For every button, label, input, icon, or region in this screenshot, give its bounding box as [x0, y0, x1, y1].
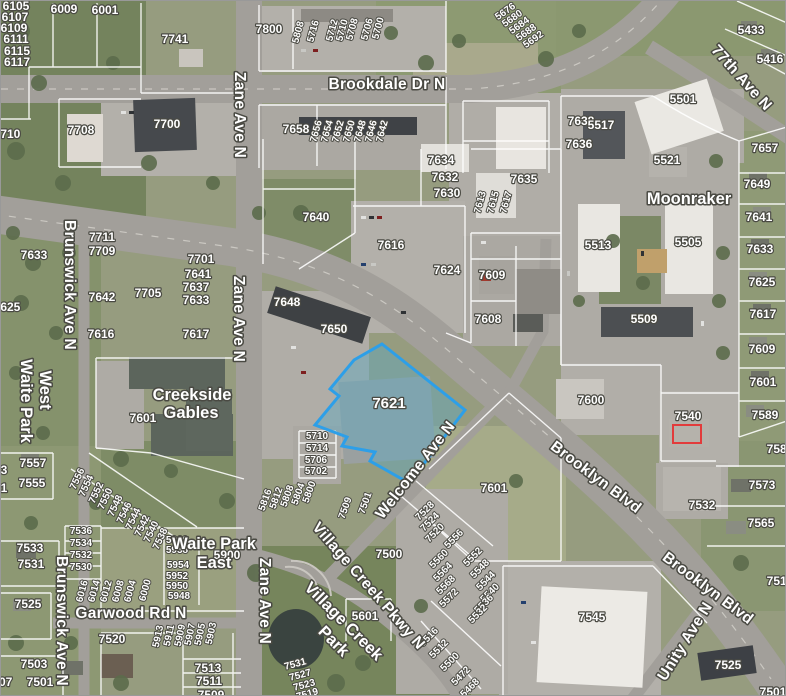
parcel-label: 7600 — [578, 393, 605, 407]
parcel-label: 7617 — [183, 327, 210, 341]
parcel-label: 7630 — [434, 186, 461, 200]
parcel-label: 7517 — [767, 574, 786, 588]
parcel-label: 7507 — [1, 675, 13, 689]
parcel-label: 7616 — [88, 327, 115, 341]
parcel-label: 7650 — [321, 322, 348, 336]
parcel-label: 7636 — [566, 137, 593, 151]
parcel-label: 5505 — [675, 235, 702, 249]
parcel-label: 7573 — [749, 478, 776, 492]
street-label: Garwood Rd N — [75, 605, 186, 622]
parcel-label: 7501 — [27, 675, 54, 689]
parcel-label: 6117 — [4, 55, 30, 69]
parcel-label: 5954 — [167, 560, 190, 571]
street-label: Brunswick Ave N — [61, 220, 78, 350]
map-canvas[interactable]: 6105610761096111611561176009600177417800… — [0, 0, 786, 696]
parcel-label: 7501 — [760, 685, 786, 696]
parcel-label: 7705 — [135, 286, 162, 300]
parcel-label: 7657 — [752, 141, 779, 155]
parcel-label: 7608 — [475, 312, 502, 326]
parcel-label: 7658 — [283, 122, 310, 136]
parcel-label: 5501 — [670, 92, 697, 106]
parcel-label: 7609 — [479, 268, 506, 282]
area-label: Waite Park — [17, 359, 35, 444]
parcel-label: 5706 — [305, 455, 328, 466]
parcel-label: 7609 — [749, 342, 776, 356]
parcel-label: 5433 — [738, 23, 765, 37]
street-label: Zane Ave N — [230, 276, 247, 362]
parcel-label: 5517 — [588, 118, 615, 132]
parcel-label: 7601 — [130, 411, 157, 425]
parcel-label: 7624 — [434, 263, 461, 277]
parcel-label: 7700 — [154, 117, 181, 131]
parcel-label: 6001 — [92, 3, 119, 17]
street-label: Brookdale Dr N — [328, 76, 445, 93]
parcel-label: 7503 — [21, 657, 48, 671]
parcel-label: 7557 — [20, 456, 47, 470]
parcel-label: 7710 — [1, 127, 21, 141]
parcel-label: 7551 — [1, 481, 8, 495]
parcel-label: 7649 — [744, 177, 771, 191]
parcel-label: 7635 — [511, 172, 538, 186]
parcel-label: 7625 — [749, 275, 776, 289]
parcel-label: 7525 — [715, 658, 742, 672]
parcel-label: 7555 — [19, 476, 46, 490]
area-label: Gables — [163, 404, 218, 422]
parcel-label: 7625 — [1, 300, 21, 314]
parcel-label: 7525 — [15, 597, 42, 611]
parcel-label: 5714 — [306, 443, 329, 454]
parcel-label: 7533 — [17, 541, 44, 555]
aerial-map[interactable]: 6105610761096111611561176009600177417800… — [1, 1, 786, 696]
parcel-label: 7601 — [750, 375, 777, 389]
street-label: Brunswick Ave N — [53, 556, 70, 686]
selected-parcel-label: 7621 — [372, 395, 405, 412]
parcel-label: 5948 — [168, 591, 191, 602]
parcel-label: 7641 — [185, 267, 212, 281]
parcel-label: 7711 — [89, 230, 115, 244]
parcel-label: 7553 — [1, 463, 8, 477]
street-label: Zane Ave N — [231, 72, 248, 158]
parcel-label: 7633 — [21, 248, 48, 262]
parcel-label: 7520 — [99, 632, 126, 646]
parcel-label: 7641 — [746, 210, 773, 224]
parcel-label: 7648 — [274, 295, 301, 309]
parcel-label: 7800 — [256, 22, 283, 36]
parcel-label: 7513 — [195, 661, 222, 675]
parcel-label: 7536 — [70, 526, 93, 537]
parcel-label: 7532 — [689, 498, 716, 512]
parcel-label: 7701 — [188, 252, 215, 266]
parcel-label: 7637 — [183, 280, 210, 294]
parcel-label: 5521 — [654, 153, 681, 167]
parcel-label: 5513 — [585, 238, 612, 252]
parcel-label: 5702 — [305, 466, 328, 477]
parcel-label: 7581 — [767, 442, 786, 456]
parcel-label: 6009 — [51, 2, 78, 16]
parcel-label: 7741 — [162, 32, 189, 46]
parcel-label: 7640 — [303, 210, 330, 224]
area-label: Waite Park — [172, 535, 257, 553]
street-label: Zane Ave N — [256, 558, 273, 644]
parcel-label: 7511 — [196, 674, 222, 688]
parcel-label: 7509 — [198, 688, 225, 696]
area-label: East — [197, 554, 232, 572]
parcel-label: 7532 — [70, 550, 93, 561]
parcel-label: 7617 — [750, 307, 777, 321]
parcel-label: 7632 — [432, 170, 459, 184]
parcel-label: 7633 — [183, 293, 210, 307]
parcel-label: 7500 — [376, 547, 403, 561]
parcel-label: 7709 — [89, 244, 116, 258]
parcel-label: 7601 — [481, 481, 508, 495]
parcel-label: 5509 — [631, 312, 658, 326]
parcel-label: 7589 — [752, 408, 779, 422]
parcel-label: 7642 — [89, 290, 116, 304]
parcel-label: 7634 — [428, 153, 455, 167]
parcel-label: 7534 — [70, 538, 93, 549]
parcel-label: 7540 — [675, 409, 702, 423]
parcel-label: 5710 — [306, 431, 329, 442]
area-label: West — [36, 370, 54, 410]
parcel-label: 7530 — [70, 562, 93, 573]
parcel-label: 7616 — [378, 238, 405, 252]
parcel-label: 7633 — [747, 242, 774, 256]
area-label: Moonraker — [647, 190, 732, 208]
parcel-label: 7565 — [748, 516, 775, 530]
parcel-label: 5416 — [757, 52, 784, 66]
parcel-label: 7531 — [18, 557, 45, 571]
area-label: Creekside — [153, 386, 232, 404]
parcel-label: 7708 — [68, 123, 95, 137]
parcel-label: 7545 — [579, 610, 606, 624]
